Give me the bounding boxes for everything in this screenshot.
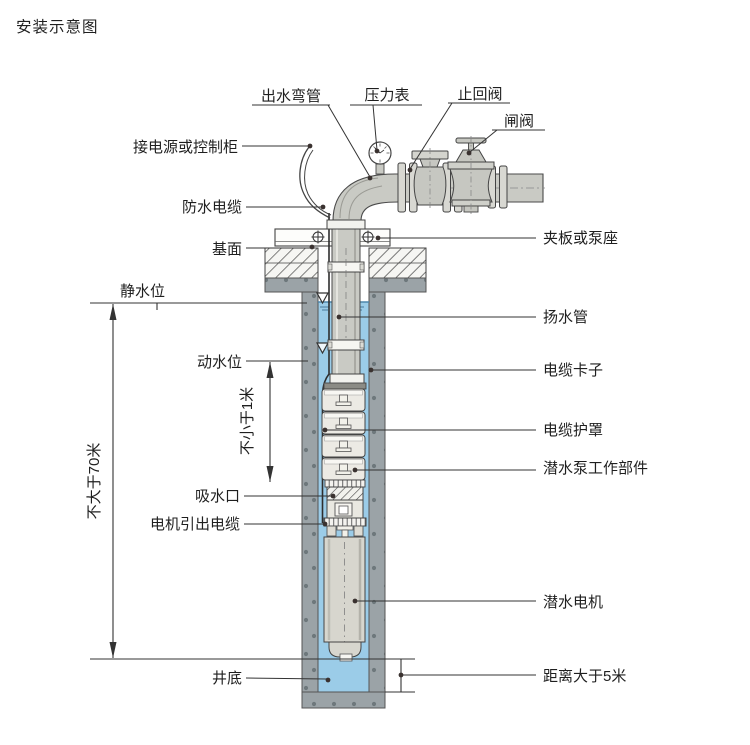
label-max-depth: 不大于70米 <box>86 443 103 520</box>
installation-diagram-page: 安装示意图 <box>0 0 750 745</box>
foundation-right-base <box>369 278 426 292</box>
surface-pipework <box>327 136 545 229</box>
casing-left <box>302 292 318 708</box>
label-outlet-elbow: 出水弯管 <box>261 88 321 105</box>
pump-stage <box>322 389 365 411</box>
label-motor-lead-cable: 电机引出电缆 <box>150 516 240 533</box>
pump-stage <box>322 435 365 457</box>
label-well-bottom: 井底 <box>212 670 242 687</box>
gate-valve-device <box>448 136 494 216</box>
label-pump-working-parts: 潜水泵工作部件 <box>543 460 648 477</box>
label-power-or-control-cabinet: 接电源或控制柜 <box>133 139 238 156</box>
well-bottom-slab <box>302 692 385 708</box>
installation-diagram: 安装示意图 <box>0 0 750 745</box>
pump-stage <box>322 458 365 480</box>
label-suction-inlet: 吸水口 <box>195 488 240 505</box>
label-check-valve: 止回阀 <box>457 86 502 103</box>
label-waterproof-cable: 防水电缆 <box>182 199 242 216</box>
pump-top-flange <box>330 374 364 384</box>
label-min-clearance: 不小于1米 <box>239 387 256 455</box>
label-gate-valve: 闸阀 <box>504 113 534 130</box>
submersible-pump-unit <box>322 383 366 661</box>
label-submersible-motor: 潜水电机 <box>543 594 603 611</box>
label-riser-pipe: 扬水管 <box>543 309 588 326</box>
page-title: 安装示意图 <box>16 17 99 36</box>
motor-foot <box>340 654 352 661</box>
label-dynamic-water-level: 动水位 <box>197 354 242 371</box>
label-static-water-level: 静水位 <box>120 283 165 300</box>
label-distance-gt-5m: 距离大于5米 <box>543 668 626 685</box>
label-pressure-gauge: 压力表 <box>364 87 409 104</box>
foundation-left-base <box>265 278 318 292</box>
pump-motor-coupling <box>324 500 366 537</box>
suction-band <box>325 480 365 487</box>
pipe-coupling <box>328 340 364 350</box>
pump-inlet-band <box>324 383 366 389</box>
label-base-surface: 基面 <box>212 241 242 258</box>
label-clamp-or-pump-seat: 夹板或泵座 <box>543 229 618 247</box>
pump-stage <box>322 412 365 434</box>
label-cable-guard: 电缆护罩 <box>543 422 603 439</box>
casing-right <box>369 292 385 708</box>
label-cable-clamp: 电缆卡子 <box>543 362 603 379</box>
elbow-base-flange <box>327 220 365 229</box>
motor-body <box>324 537 365 661</box>
pressure-gauge-device <box>369 142 391 174</box>
